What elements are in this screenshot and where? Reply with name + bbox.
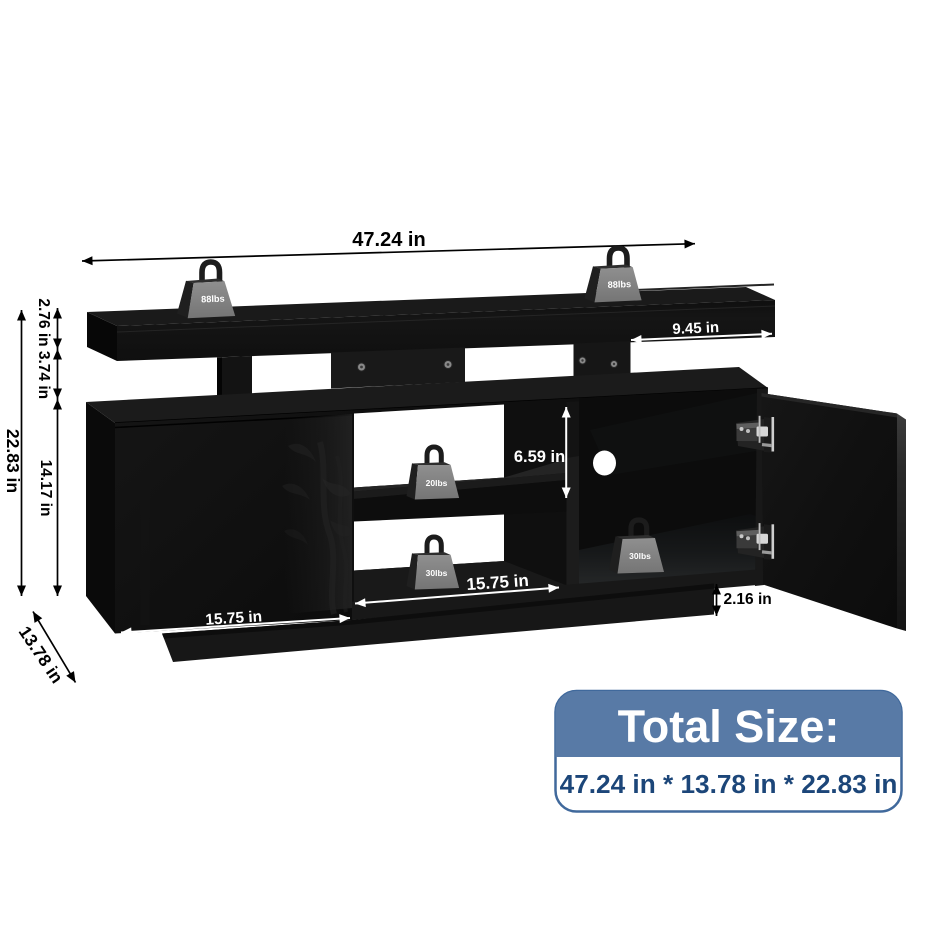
svg-text:88lbs: 88lbs xyxy=(607,279,631,290)
svg-text:22.83 in: 22.83 in xyxy=(3,429,23,493)
svg-text:2.76 in: 2.76 in xyxy=(35,298,52,346)
svg-text:30lbs: 30lbs xyxy=(629,551,651,561)
svg-text:88lbs: 88lbs xyxy=(201,294,225,305)
svg-text:47.24 in: 47.24 in xyxy=(352,229,425,251)
svg-text:15.75 in: 15.75 in xyxy=(205,608,263,628)
svg-text:Total Size:: Total Size: xyxy=(618,701,840,752)
svg-text:6.59 in: 6.59 in xyxy=(514,448,565,466)
svg-text:47.24 in * 13.78 in * 22.83 in: 47.24 in * 13.78 in * 22.83 in xyxy=(560,769,898,799)
svg-text:9.45 in: 9.45 in xyxy=(672,319,719,338)
svg-text:14.17 in: 14.17 in xyxy=(37,460,54,517)
svg-text:30lbs: 30lbs xyxy=(426,568,448,578)
svg-text:3.74 in: 3.74 in xyxy=(35,351,52,399)
svg-text:2.16 in: 2.16 in xyxy=(724,591,772,608)
svg-text:20lbs: 20lbs xyxy=(426,478,448,488)
